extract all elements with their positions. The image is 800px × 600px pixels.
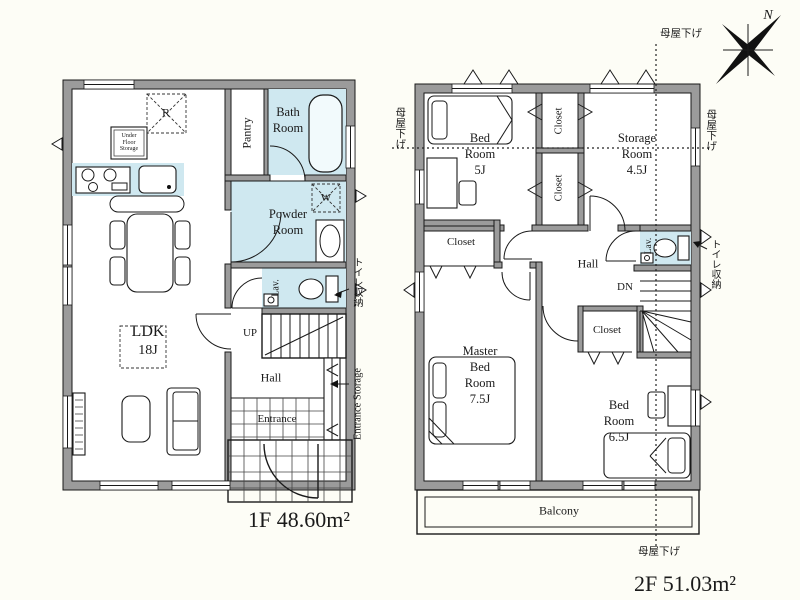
stairs-down-label: DN [617,280,633,294]
floor1-area-label: 1F 48.60m² [248,506,350,534]
bedroom65j-label: Bed Room 6.5J [604,397,635,445]
living-table-icon [122,396,150,442]
entrance-storage-cabinet [324,358,340,440]
bedroom5j-label: Bed Room 5J [465,130,496,178]
kitchen-sink-icon [139,166,176,193]
ldk-label: LDK 18J [132,322,165,360]
hall-label-2f: Hall [578,256,599,271]
washer-label: W [321,191,331,205]
pantry-label: Pantry [239,117,254,148]
omoya-sage-label-top: 母屋下げ [660,27,702,40]
desk-icon-5j [427,158,457,208]
floor-plan-page: LDK 18J Bath Room Pantry Powder Room Lav… [0,0,800,600]
ldk-name: LDK [132,322,165,342]
floor2-plan [404,70,711,534]
hall-label-1f: Hall [261,370,282,385]
ldk-size: 18J [132,342,165,360]
refrigerator-label: R [162,105,170,120]
desk-icon-65j [668,386,691,426]
balcony-label: Balcony [539,503,579,518]
compass-north-label: N [763,7,772,25]
floor1-plan [52,80,366,502]
lav-label-2f: Lav. [643,238,655,255]
omoya-sage-label-bottom: 母屋下げ [638,545,680,558]
toilet-storage-label-2f: トイレ収納 [709,239,719,289]
omoya-sage-label-left: 母屋下げ [394,107,405,149]
closet-label-b: Closet [552,175,565,202]
sofa-icon [167,388,200,455]
entrance-label: Entrance [257,412,296,426]
omoya-sage-label-right: 母屋下げ [705,109,716,151]
tv-board-icon [73,393,85,455]
closet-label-master: Closet [447,235,475,249]
powder-room-label: Powder Room [269,206,307,238]
entrance-storage-label: Entrance Storage [351,368,364,440]
bathroom-label: Bath Room [273,104,304,136]
toilet-storage-label-1f: トイレ収納 [351,257,361,307]
vanity-sink-icon [316,220,344,262]
floor2-area-label: 2F 51.03m² [634,570,736,598]
chair-icon-5j [459,181,476,205]
closet-label-a: Closet [552,108,565,135]
lav-label-1f: Lav. [271,279,284,296]
floor-plan-drawing [0,0,800,600]
closet-label-c: Closet [593,323,621,337]
bathtub-icon [309,95,342,172]
stairs-up-label: UP [243,326,257,340]
under-floor-storage-label: Under Floor Storage [120,133,138,153]
master-bedroom-label: Master Bed Room 7.5J [463,343,498,407]
storage-room-label: Storage Room 4.5J [618,130,656,178]
compass-icon [716,15,781,84]
